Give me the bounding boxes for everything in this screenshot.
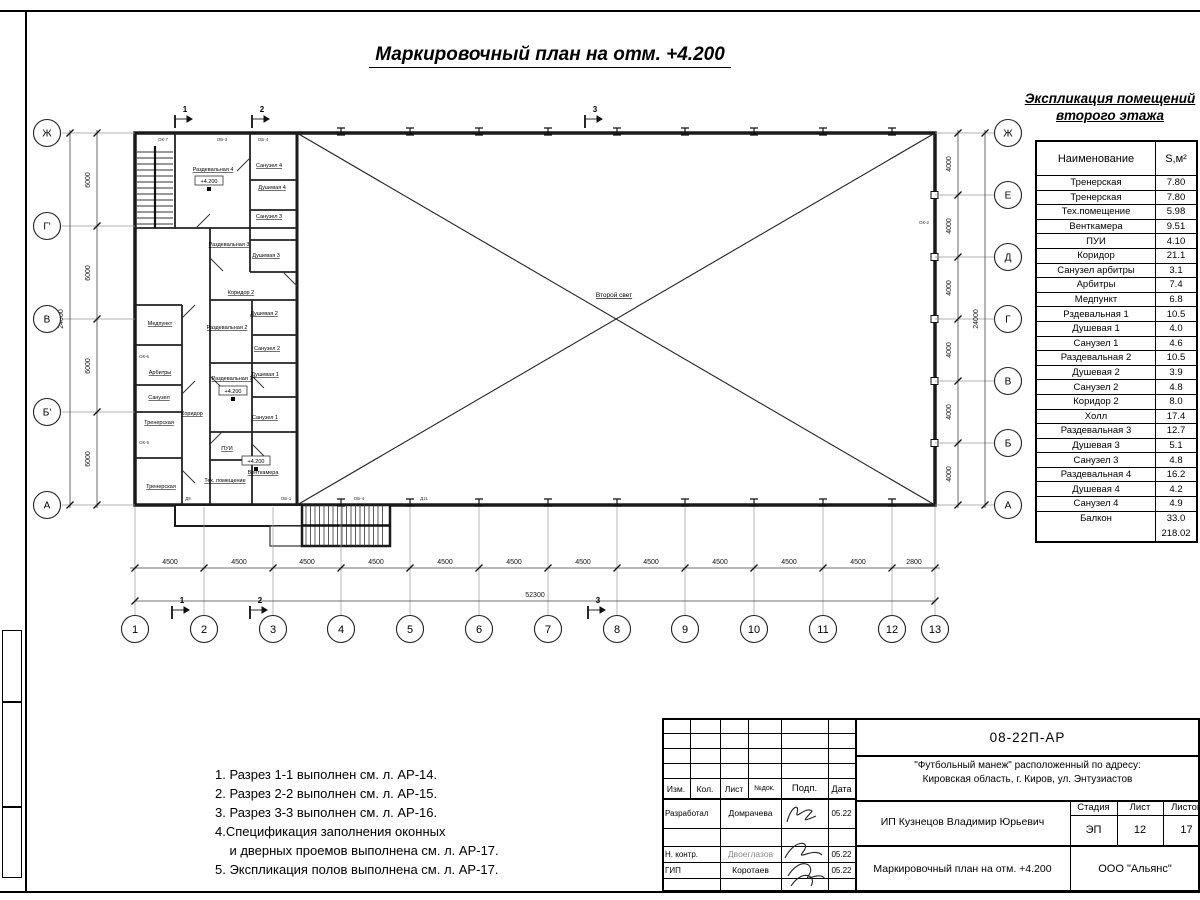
svg-text:4000: 4000 [946, 404, 953, 420]
svg-text:4500: 4500 [299, 559, 315, 566]
svg-text:Раздевальная 1: Раздевальная 1 [212, 376, 253, 382]
schedule-row: Раздевальная 3 12.7 [1037, 424, 1196, 439]
schedule-row: Душевая 4 4.2 [1037, 482, 1196, 497]
room-name: Венткамера [1037, 220, 1156, 234]
room-name: Душевая 2 [1037, 366, 1156, 380]
svg-text:Е: Е [1005, 191, 1012, 202]
svg-text:4500: 4500 [575, 559, 591, 566]
room-area: 4.6 [1156, 337, 1196, 351]
schedule-row: Медпункт 6.8 [1037, 293, 1196, 308]
schedule-row: Коридор 2 8.0 [1037, 395, 1196, 410]
room-name: Рздевальная 1 [1037, 307, 1156, 321]
svg-text:Санузел: Санузел [148, 395, 169, 401]
name-gip: Коротаев [720, 862, 781, 878]
svg-text:+4.200: +4.200 [248, 459, 265, 465]
room-area: 7.4 [1156, 278, 1196, 292]
svg-text:4000: 4000 [946, 218, 953, 234]
schedule-row: Арбитры 7.4 [1037, 278, 1196, 293]
axis-bubbles-left: Ж Г' В Б' А [34, 120, 61, 519]
svg-text:4500: 4500 [162, 559, 178, 566]
room-area: 9.51 [1156, 220, 1196, 234]
sheets-total: 17 [1163, 817, 1200, 843]
signature-developer [787, 807, 816, 822]
total-empty-cell [1037, 526, 1156, 541]
svg-text:4500: 4500 [781, 559, 797, 566]
room-name: Медпункт [1037, 293, 1156, 307]
note-line: и дверных проемов выполнена см. л. АР-17… [215, 841, 499, 860]
svg-text:Г': Г' [43, 222, 50, 233]
svg-text:Венткамера: Венткамера [248, 470, 280, 476]
project-address-line2: Кировская область, г. Киров, ул. Энтузиа… [857, 772, 1198, 786]
note-line: 1. Разрез 1-1 выполнен см. л. АР-14. [215, 765, 499, 784]
room-area: 10.5 [1156, 351, 1196, 365]
svg-text:ОК-6: ОК-6 [139, 354, 150, 359]
date-developer: 05.22 [828, 804, 855, 822]
room-area: 4.0 [1156, 322, 1196, 336]
room-area: 21.1 [1156, 249, 1196, 263]
svg-text:Д11: Д11 [420, 496, 428, 501]
hall-diagonals [297, 133, 935, 505]
col-list: Лист [720, 780, 748, 797]
svg-text:Санузел 1: Санузел 1 [252, 415, 278, 421]
svg-text:1: 1 [180, 596, 185, 605]
svg-text:Душевая 2: Душевая 2 [250, 311, 278, 317]
svg-text:ОБ-3: ОБ-3 [217, 137, 228, 142]
room-name: Душевая 3 [1037, 439, 1156, 453]
schedule-row: Санузел арбитры 3.1 [1037, 264, 1196, 279]
schedule-row: Санузел 3 4.8 [1037, 453, 1196, 468]
schedule-row: Тех.помещение 5.98 [1037, 205, 1196, 220]
schedule-col-name: Наименование [1037, 142, 1156, 175]
schedule-row: Балкон 33.0 [1037, 512, 1196, 527]
company-name: ООО "Альянс" [1070, 847, 1200, 890]
schedule-row: Венткамера 9.51 [1037, 220, 1196, 235]
room-area: 5.1 [1156, 439, 1196, 453]
name-ncontrol: Двоеглазов [720, 846, 781, 862]
name-developer: Домрачева [720, 804, 781, 822]
room-name: Тех.помещение [1037, 205, 1156, 219]
schedule-row: Рздевальная 1 10.5 [1037, 307, 1196, 322]
room-name: Тренерская [1037, 191, 1156, 205]
svg-text:В: В [1005, 377, 1012, 388]
svg-text:Тех. помещение: Тех. помещение [204, 478, 245, 484]
svg-text:6000: 6000 [85, 172, 92, 188]
note-line: 5. Экспликация полов выполнена см. л. АР… [215, 860, 499, 879]
margin-box-2 [2, 702, 22, 807]
svg-text:4500: 4500 [506, 559, 522, 566]
axis-bubbles-right: Ж Е Д Г В Б А [995, 120, 1022, 519]
room-name: Душевая 1 [1037, 322, 1156, 336]
svg-text:Санузел 3: Санузел 3 [256, 214, 282, 220]
schedule-row: Санузел 4 4.9 [1037, 497, 1196, 512]
svg-text:7: 7 [545, 624, 551, 636]
sheet-label: Лист [1117, 801, 1163, 814]
svg-text:2800: 2800 [906, 559, 922, 566]
svg-text:3: 3 [593, 105, 598, 114]
svg-text:Душевая 3: Душевая 3 [252, 253, 280, 259]
room-name: Санузел 4 [1037, 497, 1156, 511]
svg-text:ОБ-4: ОБ-4 [354, 496, 365, 501]
door-leaves [182, 158, 297, 483]
svg-text:Раздевальная 4: Раздевальная 4 [193, 167, 234, 173]
svg-text:ОК-7: ОК-7 [158, 137, 169, 142]
svg-text:6: 6 [476, 624, 482, 636]
svg-text:ОК-2: ОК-2 [919, 220, 930, 225]
room-name: Раздевальная 3 [1037, 424, 1156, 438]
svg-text:ПУИ: ПУИ [221, 446, 232, 452]
svg-text:2: 2 [258, 596, 263, 605]
svg-text:12: 12 [886, 624, 898, 636]
sheet-number: 12 [1117, 817, 1163, 843]
schedule-row: Раздевальная 4 16.2 [1037, 468, 1196, 483]
col-podp: Подп. [781, 780, 828, 797]
svg-text:1: 1 [183, 105, 188, 114]
svg-text:4500: 4500 [368, 559, 384, 566]
schedule-row: Тренерская 7.80 [1037, 176, 1196, 191]
schedule-row: Душевая 2 3.9 [1037, 366, 1196, 381]
svg-text:Ж: Ж [1003, 129, 1013, 140]
svg-text:3: 3 [270, 624, 276, 636]
room-name: Раздевальная 2 [1037, 351, 1156, 365]
svg-text:Душевая 1: Душевая 1 [251, 372, 279, 378]
notes-list: 1. Разрез 1-1 выполнен см. л. АР-14.2. Р… [215, 727, 499, 879]
room-area: 7.80 [1156, 191, 1196, 205]
schedule-title: Экспликация помещений второго этажа [1020, 90, 1200, 124]
svg-text:9: 9 [682, 624, 688, 636]
schedule-total-row: 218.02 [1037, 526, 1196, 541]
svg-text:Санузел 2: Санузел 2 [254, 346, 280, 352]
svg-text:4500: 4500 [231, 559, 247, 566]
col-kol: Кол. [690, 780, 720, 797]
svg-text:ОК-5: ОК-5 [139, 440, 150, 445]
svg-text:Д9: Д9 [185, 496, 191, 501]
svg-text:2: 2 [201, 624, 207, 636]
schedule-row: Душевая 3 5.1 [1037, 439, 1196, 454]
room-area: 3.9 [1156, 366, 1196, 380]
room-name: Душевая 4 [1037, 482, 1156, 496]
svg-text:Д: Д [1005, 253, 1012, 264]
schedule-row: Душевая 1 4.0 [1037, 322, 1196, 337]
walls [135, 133, 935, 505]
grid-lines [62, 133, 1022, 615]
schedule-col-area: S,м² [1156, 142, 1196, 175]
room-area: 3.1 [1156, 264, 1196, 278]
svg-text:ОБ-4: ОБ-4 [258, 137, 269, 142]
opening-tags: ОК-7 ОБ-3 ОБ-4 ОК-6 ОК-5 ОК-2 Д9 ОБ-1 ОБ… [139, 137, 930, 501]
schedule-row: ПУИ 4.10 [1037, 234, 1196, 249]
svg-text:Тренерская: Тренерская [146, 484, 176, 490]
svg-text:Раздевальная 3: Раздевальная 3 [209, 242, 250, 248]
col-izm: Изм. [662, 780, 690, 797]
doc-number: 08-22П-АР [855, 722, 1200, 752]
room-name: Санузел 2 [1037, 380, 1156, 394]
schedule-row: Санузел 1 4.6 [1037, 337, 1196, 352]
svg-text:Коридор: Коридор [181, 411, 203, 417]
svg-text:ОБ-1: ОБ-1 [281, 496, 292, 501]
svg-text:+4.200: +4.200 [225, 389, 242, 395]
date-gip: 05.22 [828, 862, 855, 878]
drawing-sheet: { "sheet": { "title": "Маркировочный пла… [0, 0, 1200, 900]
svg-text:Санузел 4: Санузел 4 [256, 163, 282, 169]
schedule-row: Холл 17.4 [1037, 410, 1196, 425]
room-area: 8.0 [1156, 395, 1196, 409]
svg-text:Г: Г [1005, 315, 1011, 326]
svg-text:Арбитры: Арбитры [149, 370, 172, 376]
svg-text:Коридор 2: Коридор 2 [228, 290, 254, 296]
room-area: 10.5 [1156, 307, 1196, 321]
note-line: 2. Разрез 2-2 выполнен см. л. АР-15. [215, 784, 499, 803]
svg-text:Душевая 4: Душевая 4 [258, 185, 286, 191]
drawing-title: Маркировочный план на отм. +4.200 [857, 847, 1068, 890]
svg-text:6000: 6000 [85, 451, 92, 467]
balcony [175, 505, 302, 546]
role-developer: Разработал [665, 804, 720, 822]
room-area: 4.8 [1156, 380, 1196, 394]
dimension-lines [67, 130, 989, 605]
margin-box-3 [2, 807, 22, 878]
svg-text:1: 1 [132, 624, 138, 636]
room-area: 17.4 [1156, 410, 1196, 424]
room-name: Коридор [1037, 249, 1156, 263]
role-gip: ГИП [665, 862, 720, 878]
svg-text:+4.200: +4.200 [201, 179, 218, 185]
room-area: 16.2 [1156, 468, 1196, 482]
svg-text:4000: 4000 [946, 342, 953, 358]
column-markers [337, 128, 938, 506]
schedule-row: Санузел 2 4.8 [1037, 380, 1196, 395]
stage-label: Стадия [1070, 801, 1117, 814]
svg-text:3: 3 [596, 596, 601, 605]
svg-text:А: А [44, 501, 51, 512]
schedule-header-row: Наименование S,м² [1037, 142, 1196, 176]
project-address-line1: "Футбольный манеж" расположенный по адре… [857, 758, 1198, 772]
room-name: Санузел 3 [1037, 453, 1156, 467]
signature-ncontrol-gip [785, 843, 825, 886]
room-area: 33.0 [1156, 512, 1196, 527]
stage-value: ЭП [1070, 817, 1117, 843]
room-schedule-table: Наименование S,м² Тренерская 7.80 Тренер… [1035, 140, 1198, 543]
client-name: ИП Кузнецов Владимир Юрьевич [857, 806, 1068, 838]
svg-text:11: 11 [817, 624, 828, 636]
note-line: 3. Разрез 3-3 выполнен см. л. АР-16. [215, 803, 499, 822]
svg-text:8: 8 [614, 624, 620, 636]
svg-text:Медпункт: Медпункт [148, 321, 173, 327]
svg-text:52300: 52300 [525, 592, 545, 599]
svg-text:6000: 6000 [85, 265, 92, 281]
room-name: Балкон [1037, 512, 1156, 527]
room-area: 5.98 [1156, 205, 1196, 219]
role-ncontrol: Н. контр. [665, 846, 720, 862]
stair-internal [137, 146, 173, 228]
svg-text:4000: 4000 [946, 280, 953, 296]
room-labels: Раздевальная 4 Санузел 4 Душевая 4 Сануз… [144, 163, 632, 490]
dimension-values: 4500 4500 4500 4500 4500 4500 4500 4500 … [58, 156, 980, 599]
svg-text:Б: Б [1005, 439, 1012, 450]
col-ndok: №док. [748, 780, 781, 797]
elevation-marks: +4.200 +4.200 +4.200 [195, 176, 270, 471]
schedule-row: Тренерская 7.80 [1037, 191, 1196, 206]
schedule-title-line1: Экспликация помещений [1020, 90, 1200, 107]
svg-text:24000: 24000 [973, 309, 980, 329]
total-area: 218.02 [1156, 526, 1196, 541]
note-line: 4.Спецификация заполнения оконных [215, 822, 499, 841]
svg-text:4500: 4500 [712, 559, 728, 566]
svg-text:4500: 4500 [643, 559, 659, 566]
room-name: Санузел арбитры [1037, 264, 1156, 278]
room-area: 7.80 [1156, 176, 1196, 190]
svg-text:2: 2 [260, 105, 265, 114]
svg-text:Тренерская: Тренерская [144, 420, 174, 426]
room-name: Тренерская [1037, 176, 1156, 190]
svg-text:Раздевальная 2: Раздевальная 2 [207, 325, 248, 331]
svg-text:5: 5 [407, 624, 413, 636]
schedule-rows: Тренерская 7.80 Тренерская 7.80 Тех.поме… [1037, 176, 1196, 526]
col-data: Дата [828, 780, 855, 797]
room-area: 12.7 [1156, 424, 1196, 438]
svg-text:Б': Б' [43, 408, 52, 419]
svg-text:4000: 4000 [946, 466, 953, 482]
room-name: Коридор 2 [1037, 395, 1156, 409]
svg-text:4000: 4000 [946, 156, 953, 172]
room-name: Санузел 1 [1037, 337, 1156, 351]
room-area: 4.8 [1156, 453, 1196, 467]
svg-text:А: А [1005, 501, 1012, 512]
svg-text:4500: 4500 [850, 559, 866, 566]
svg-text:Ж: Ж [42, 129, 52, 140]
svg-text:В: В [44, 315, 51, 326]
room-area: 4.2 [1156, 482, 1196, 496]
room-area: 4.9 [1156, 497, 1196, 511]
svg-text:10: 10 [748, 624, 760, 636]
room-area: 6.8 [1156, 293, 1196, 307]
schedule-row: Коридор 21.1 [1037, 249, 1196, 264]
stair-external [302, 505, 390, 546]
svg-text:4500: 4500 [437, 559, 453, 566]
schedule-row: Раздевальная 2 10.5 [1037, 351, 1196, 366]
signatures [781, 798, 828, 892]
schedule-title-line2: второго этажа [1020, 107, 1200, 124]
room-name: ПУИ [1037, 234, 1156, 248]
svg-text:6000: 6000 [85, 358, 92, 374]
room-name: Арбитры [1037, 278, 1156, 292]
svg-text:13: 13 [929, 624, 941, 636]
room-area: 4.10 [1156, 234, 1196, 248]
room-name: Раздевальная 4 [1037, 468, 1156, 482]
date-ncontrol: 05.22 [828, 846, 855, 862]
axis-bubbles-bottom: 1 2 3 4 5 6 7 8 9 10 11 12 13 [122, 616, 949, 643]
sheets-label: Листов [1163, 801, 1200, 814]
room-name: Холл [1037, 410, 1156, 424]
svg-text:4: 4 [338, 624, 344, 636]
hall-label: Второй свет [596, 291, 632, 299]
